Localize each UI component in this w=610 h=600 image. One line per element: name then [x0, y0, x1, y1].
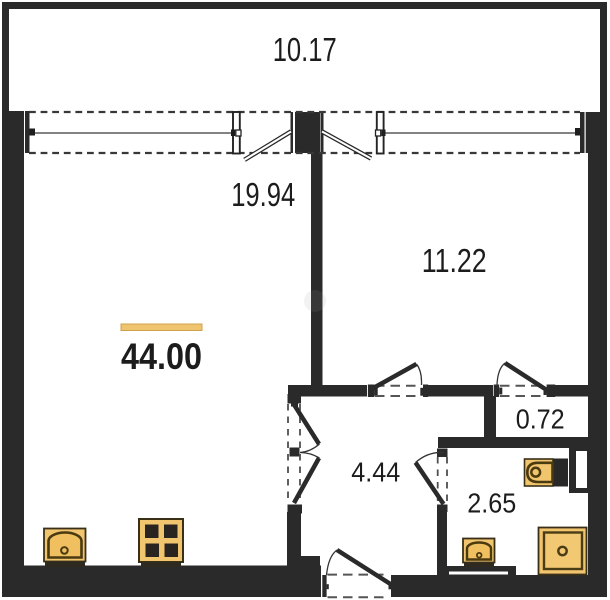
- svg-text:10.17: 10.17: [273, 31, 337, 68]
- svg-text:44.00: 44.00: [121, 336, 202, 377]
- svg-text:19.94: 19.94: [231, 176, 295, 213]
- svg-text:4.44: 4.44: [351, 457, 400, 488]
- svg-text:0.72: 0.72: [516, 404, 565, 435]
- svg-text:11.22: 11.22: [422, 242, 487, 279]
- svg-text:2.65: 2.65: [467, 488, 516, 519]
